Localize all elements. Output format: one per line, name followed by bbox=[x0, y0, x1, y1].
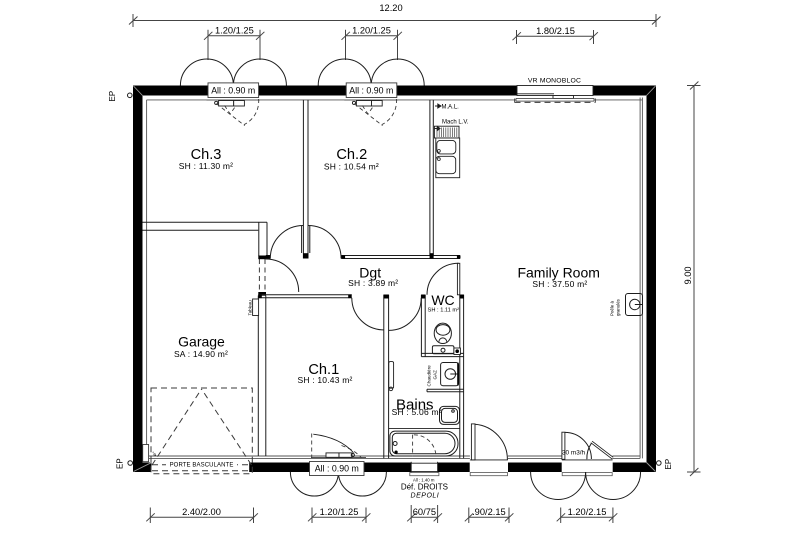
svg-text:1.20/2.15: 1.20/2.15 bbox=[568, 507, 607, 517]
svg-text:Garage: Garage bbox=[178, 334, 225, 350]
svg-text:All : 0.90 m: All : 0.90 m bbox=[211, 85, 255, 95]
svg-text:1.20/1.25: 1.20/1.25 bbox=[352, 26, 391, 36]
svg-text:GAZ: GAZ bbox=[433, 370, 438, 380]
svg-text:SH : 3.89 m²: SH : 3.89 m² bbox=[348, 278, 398, 288]
svg-text:SA : 14.90 m²: SA : 14.90 m² bbox=[174, 349, 228, 359]
svg-text:Poêle à: Poêle à bbox=[610, 301, 615, 316]
svg-text:All : 0.90 m: All : 0.90 m bbox=[315, 464, 359, 474]
svg-text:ø°: ø° bbox=[152, 451, 157, 456]
svg-text:PORTE BASCULANTE: PORTE BASCULANTE bbox=[170, 463, 234, 469]
svg-text:1.20/1.25: 1.20/1.25 bbox=[215, 26, 254, 36]
svg-text:SH : 10.54 m²: SH : 10.54 m² bbox=[324, 162, 379, 172]
svg-text:Mach L.V.: Mach L.V. bbox=[442, 120, 469, 126]
svg-text:M.A.L.: M.A.L. bbox=[442, 105, 460, 111]
svg-text:.90/2.15: .90/2.15 bbox=[472, 507, 506, 517]
svg-text:SH : 5.06 m²: SH : 5.06 m² bbox=[392, 407, 442, 417]
svg-text:Déf. DROITS: Déf. DROITS bbox=[401, 483, 448, 492]
svg-text:VR MONOBLOC: VR MONOBLOC bbox=[528, 78, 581, 85]
svg-text:All : 0.90 m: All : 0.90 m bbox=[349, 85, 393, 95]
svg-text:SH : 11.30 m²: SH : 11.30 m² bbox=[179, 161, 233, 171]
svg-text:DEPOLI: DEPOLI bbox=[411, 492, 440, 499]
svg-text:1.20/1.25: 1.20/1.25 bbox=[320, 507, 359, 517]
svg-text:Tableau: Tableau bbox=[247, 300, 252, 316]
svg-text:granulés: granulés bbox=[616, 298, 621, 316]
svg-text:2.40/2.00: 2.40/2.00 bbox=[182, 507, 221, 517]
svg-text:EP: EP bbox=[108, 91, 117, 102]
svg-text:12.20: 12.20 bbox=[379, 3, 402, 13]
svg-text:WC: WC bbox=[431, 292, 454, 308]
svg-text:EP: EP bbox=[664, 459, 673, 470]
svg-text:Chaudière: Chaudière bbox=[427, 365, 432, 387]
svg-text:30 m3/h: 30 m3/h bbox=[562, 450, 586, 457]
svg-text:SH : 1.11 m²: SH : 1.11 m² bbox=[428, 308, 460, 314]
svg-text:SH : 37.50 m²: SH : 37.50 m² bbox=[532, 279, 587, 289]
svg-text:EP: EP bbox=[116, 458, 125, 469]
svg-text:60/75: 60/75 bbox=[413, 507, 436, 517]
svg-text:9.00: 9.00 bbox=[683, 266, 693, 284]
svg-text:SH : 10.43 m²: SH : 10.43 m² bbox=[297, 375, 352, 385]
svg-text:1.80/2.15: 1.80/2.15 bbox=[536, 26, 575, 36]
